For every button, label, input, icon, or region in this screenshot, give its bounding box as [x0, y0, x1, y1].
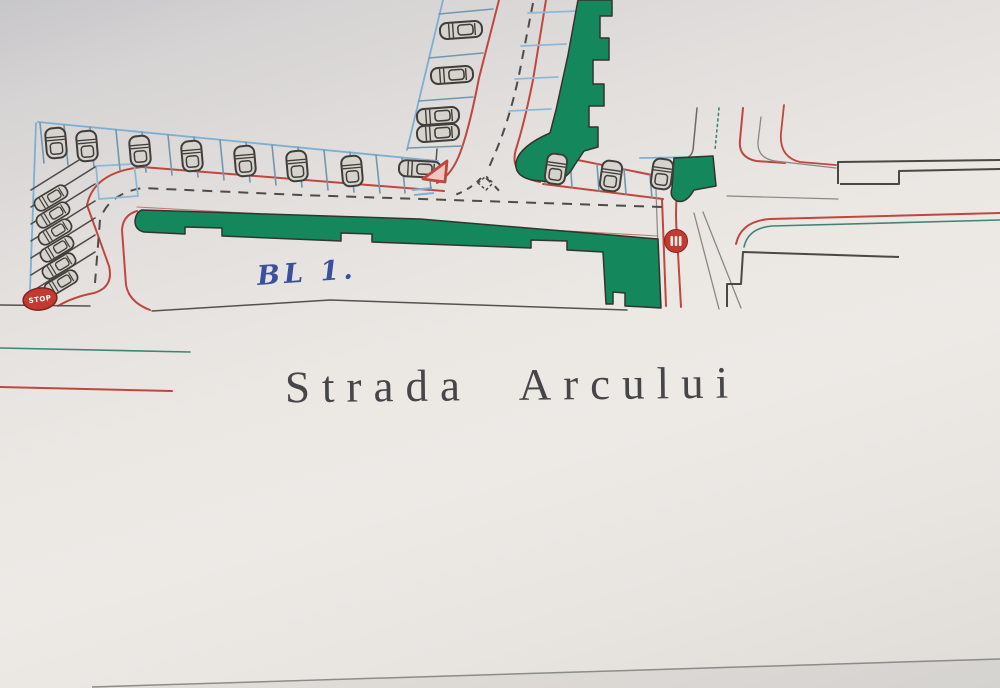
fence-line-right [727, 196, 838, 199]
junction-dash-left [452, 178, 481, 196]
branch-street-gray-1 [683, 108, 697, 159]
car-icon [286, 150, 309, 182]
car-icon [76, 130, 99, 162]
car-icon [416, 124, 459, 143]
building-bl1 [135, 210, 661, 308]
car-icon [416, 107, 459, 126]
paper-bottom-edge [92, 659, 1000, 688]
car-icon [341, 155, 364, 187]
road-edges-red [0, 0, 1000, 391]
curb-diagonal-1 [703, 212, 741, 308]
side-road-left-edge [662, 199, 666, 306]
car-icon [650, 158, 674, 190]
street-name-label: Strada Arcului [285, 358, 741, 413]
lower-road-teal-line [0, 348, 190, 352]
disc-sign-icon [665, 230, 688, 253]
car-icon [544, 153, 568, 185]
car-icon [45, 127, 68, 159]
green-patch-junction [671, 156, 716, 202]
branch-street-teal-dotted [715, 108, 719, 150]
curb-diagonal-2 [694, 213, 719, 309]
building-label: BL 1. [255, 254, 357, 292]
road-corner-right-red [736, 213, 1000, 244]
building-base-line [152, 300, 627, 311]
building-outline-topright-b [840, 169, 1000, 184]
road-corner-right-teal [744, 220, 1000, 247]
car-icon [129, 135, 152, 167]
car-icon [439, 21, 482, 40]
building-outlines-right [727, 160, 1000, 307]
building-outline-rightcenter [727, 252, 899, 307]
building-outline-topright-a [838, 160, 1000, 184]
car-icon [181, 140, 204, 172]
car-icon [234, 145, 257, 177]
lower-road-red-edge [0, 387, 172, 391]
site-plan-drawing: STOP BL 1. Strada Arcului [0, 0, 1000, 688]
car-icon [430, 66, 473, 85]
site-plan-photo: STOP BL 1. Strada Arcului [0, 0, 1000, 688]
junction-dash-right [486, 178, 501, 193]
car-icon [599, 160, 623, 192]
branch-street-red-2 [781, 105, 836, 165]
